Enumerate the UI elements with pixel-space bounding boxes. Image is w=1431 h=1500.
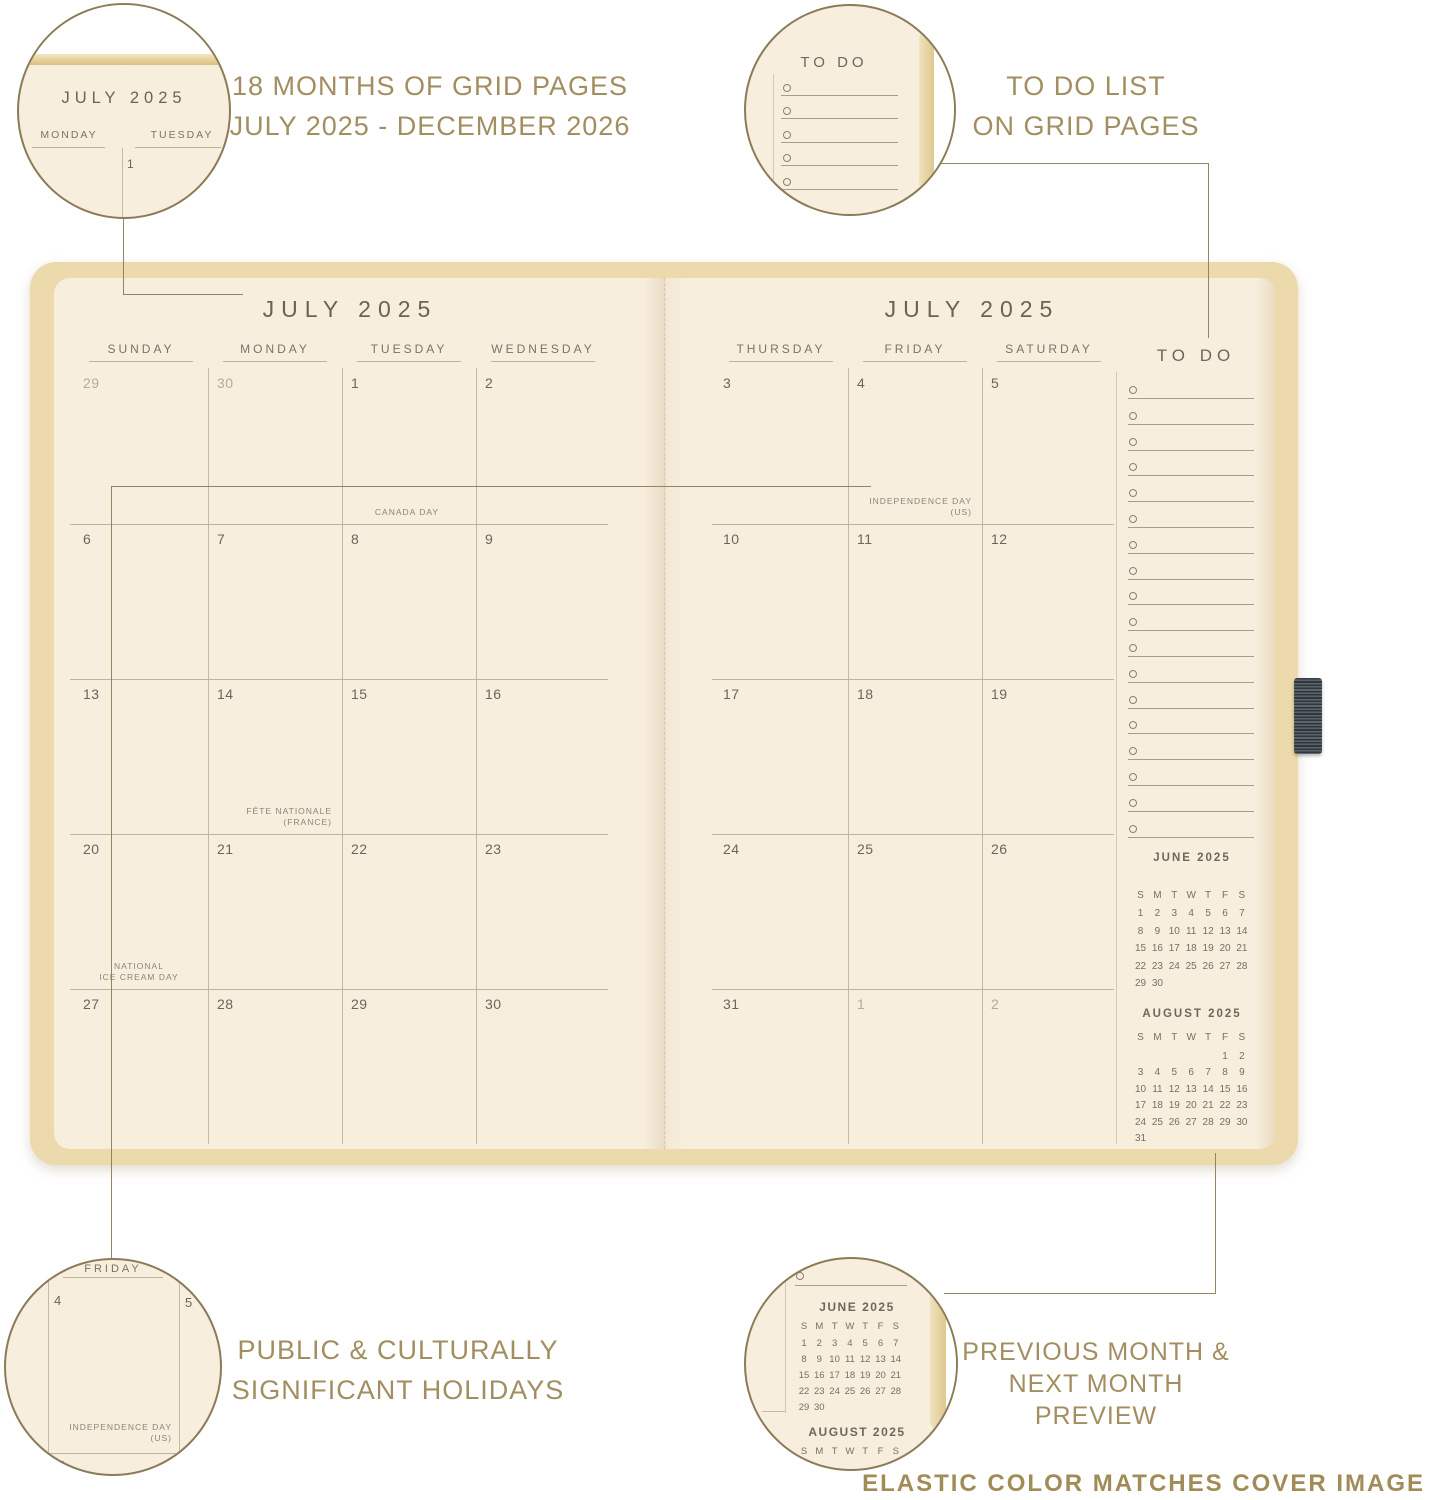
mini-calendar-cell: 22	[796, 1386, 812, 1397]
mini-calendar-cell: 10	[1132, 1084, 1149, 1095]
mini-calendar-cell: 18	[1149, 1100, 1166, 1111]
mini-calendar-cell: 2	[1233, 1051, 1250, 1062]
date-cell: 31	[723, 996, 740, 1012]
todo-bullet-icon	[1129, 696, 1137, 704]
elastic-pen-loop	[1294, 678, 1322, 754]
connector-line	[1208, 163, 1209, 338]
mini-calendar-weekday: F	[873, 1446, 889, 1457]
mini-calendar-cell: 25	[842, 1386, 858, 1397]
todo-rule-line	[1128, 837, 1254, 838]
todo-bullet-icon	[1129, 644, 1137, 652]
mini-calendar-cell: 6	[1217, 908, 1234, 919]
todo-bullet-icon	[1129, 670, 1137, 678]
date-cell: 6	[83, 531, 91, 547]
mini-calendar-cell: 18	[1183, 943, 1200, 954]
day-header-underline	[63, 1277, 163, 1278]
mini-calendar-cell: 17	[827, 1370, 843, 1381]
mini-calendar-cell: 12	[1200, 926, 1217, 937]
mini-calendar-cell: 9	[811, 1354, 827, 1365]
todo-bullet-icon	[783, 154, 791, 162]
grid-line	[762, 1411, 785, 1412]
date-cell: 22	[351, 841, 368, 857]
mini-calendar-cell: 29	[796, 1402, 812, 1413]
mini-calendar-cell: 28	[1233, 961, 1250, 972]
mini-calendar-cell: 13	[1183, 1084, 1200, 1095]
date-cell: 15	[351, 686, 368, 702]
mini-calendar-cell: 14	[1200, 1084, 1217, 1095]
mini-calendar-cell: 8	[796, 1354, 812, 1365]
mini-calendar-weekday: T	[857, 1446, 873, 1457]
connector-line	[1215, 1153, 1216, 1293]
mini-calendar-cell: 2	[811, 1338, 827, 1349]
mini-calendar-cell: 27	[1183, 1117, 1200, 1128]
mini-calendar-cell: 10	[1166, 926, 1183, 937]
mini-calendar-cell: 29	[1132, 978, 1149, 989]
date-cell: 4	[857, 375, 865, 391]
mini-calendar-cell: 9	[1233, 1067, 1250, 1078]
mini-calendar-cell: 5	[1166, 1067, 1183, 1078]
mini-calendar-weekday: T	[1166, 890, 1183, 901]
date-cell: 30	[217, 375, 234, 391]
mini-calendar-cell: 27	[1217, 961, 1234, 972]
todo-bullet-icon	[1129, 489, 1137, 497]
connector-line	[123, 294, 243, 295]
zoom-circle-mini-calendars: JUNE 2025 SMTWTFS12345678910111213141516…	[744, 1257, 958, 1471]
date-cell: 2	[485, 375, 493, 391]
mini-calendar-cell: 7	[1200, 1067, 1217, 1078]
mini-calendar-weekday: M	[1149, 890, 1166, 901]
holiday-label: NATIONALICE CREAM DAY	[80, 961, 198, 983]
right-page-month-title: JULY 2025	[714, 296, 1230, 323]
circle-date-number: 4	[54, 1293, 61, 1308]
mini-calendar-cell: 30	[1149, 978, 1166, 989]
mini-calendar-cell: 1	[1132, 908, 1149, 919]
todo-rule-line	[1128, 682, 1254, 683]
date-cell: 28	[217, 996, 234, 1012]
background-above-cover	[19, 5, 229, 54]
mini-calendar-cell: 23	[1233, 1100, 1250, 1111]
mini-calendar-cell: 14	[1233, 926, 1250, 937]
connector-line	[937, 163, 1209, 164]
date-cell: 30	[485, 996, 502, 1012]
mini-calendar-cell: 31	[1132, 1133, 1149, 1144]
todo-bullet-icon	[1129, 386, 1137, 394]
todo-rule-line	[1128, 450, 1254, 451]
mini-calendar-cell: 24	[1166, 961, 1183, 972]
mini-calendar-cell: 17	[1132, 1100, 1149, 1111]
todo-bullet-icon	[1129, 438, 1137, 446]
callout-label-grid-pages: 18 MONTHS OF GRID PAGES JULY 2025 - DECE…	[180, 66, 680, 146]
todo-rule-line	[1128, 604, 1254, 605]
zoom-circle-todo-list: TO DO	[744, 4, 956, 216]
todo-rule-line	[1128, 527, 1254, 528]
todo-rule-line	[1128, 579, 1254, 580]
mini-calendar-cell: 14	[888, 1354, 904, 1365]
elastic-color-note: ELASTIC COLOR MATCHES COVER IMAGE	[862, 1470, 1425, 1498]
mini-calendar-cell: 16	[1149, 943, 1166, 954]
mini-calendar-cell: 4	[842, 1338, 858, 1349]
date-cell: 11	[857, 531, 873, 547]
circle-todo-title: TO DO	[746, 54, 922, 71]
holiday-label: FÊTE NATIONALE(FRANCE)	[214, 806, 332, 828]
day-header: THURSDAY	[714, 342, 848, 366]
mini-calendar-cell: 24	[827, 1386, 843, 1397]
todo-bullet-icon	[1129, 799, 1137, 807]
date-cell: 24	[723, 841, 740, 857]
todo-rule-line	[781, 142, 898, 143]
todo-bullet-icon	[1129, 618, 1137, 626]
mini-calendar-weekday: W	[842, 1321, 858, 1332]
circle-june-title: JUNE 2025	[798, 1300, 916, 1314]
todo-rule-line	[1128, 398, 1254, 399]
mini-calendar-cell: 21	[1233, 943, 1250, 954]
date-cell: 1	[351, 375, 359, 391]
mini-calendar-weekday: S	[1233, 1032, 1250, 1043]
mini-calendar-weekday: S	[888, 1446, 904, 1457]
mini-calendar-cell: 11	[842, 1354, 858, 1365]
date-cell: 5	[991, 375, 999, 391]
connector-line	[123, 215, 124, 295]
todo-bullet-icon	[1129, 515, 1137, 523]
mini-calendar-cell: 23	[1149, 961, 1166, 972]
mini-calendar-weekday: T	[857, 1321, 873, 1332]
mini-calendar-weekday: F	[1217, 1032, 1234, 1043]
mini-calendar-cell: 12	[1166, 1084, 1183, 1095]
mini-calendar-cell: 23	[811, 1386, 827, 1397]
todo-rule-line	[781, 189, 898, 190]
mini-calendar-cell: 19	[857, 1370, 873, 1381]
date-cell: 18	[857, 686, 874, 702]
mini-calendar-cell: 9	[1149, 926, 1166, 937]
mini-calendar-cell: 15	[1217, 1084, 1234, 1095]
product-image-canvas: JULY 2025 JULY 2025 TO DO JUNE 2025 AUGU…	[0, 0, 1431, 1500]
date-cell: 2	[991, 996, 999, 1012]
todo-bullet-icon	[1129, 592, 1137, 600]
mini-calendar-weekday: T	[1200, 890, 1217, 901]
date-cell: 1	[857, 996, 865, 1012]
grid-line	[982, 368, 983, 1144]
mini-calendar-cell: 19	[1166, 1100, 1183, 1111]
mini-calendar-cell: 28	[1200, 1117, 1217, 1128]
mini-calendar-cell: 28	[888, 1386, 904, 1397]
todo-rule-line	[1128, 424, 1254, 425]
mini-calendar-cell: 12	[857, 1354, 873, 1365]
mini-calendar-cell: 8	[1132, 926, 1149, 937]
todo-bullet-icon	[1129, 721, 1137, 729]
date-cell: 9	[485, 531, 493, 547]
mini-calendar-cell: 13	[873, 1354, 889, 1365]
mini-calendar-cell: 7	[1233, 908, 1250, 919]
mini-calendar-cell: 2	[1149, 908, 1166, 919]
date-cell: 29	[83, 375, 100, 391]
connector-line	[111, 486, 871, 487]
holiday-label: INDEPENDENCE DAY(US)	[854, 496, 972, 518]
mini-calendar-cell: 27	[873, 1386, 889, 1397]
date-cell: 14	[217, 686, 234, 702]
mini-calendar-weekday: S	[796, 1321, 812, 1332]
mini-calendar-weekday: W	[1183, 1032, 1200, 1043]
grid-line	[712, 679, 1114, 680]
day-header: MONDAY	[208, 342, 342, 366]
todo-rule-line	[1128, 475, 1254, 476]
todo-bullet-icon	[1129, 463, 1137, 471]
grid-line	[712, 834, 1114, 835]
todo-rule-line	[1128, 656, 1254, 657]
mini-calendar-cell: 30	[811, 1402, 827, 1413]
circle-day-header: MONDAY	[33, 129, 105, 141]
day-header: WEDNESDAY	[476, 342, 610, 366]
todo-bullet-icon	[1129, 541, 1137, 549]
mini-calendar-weekday: S	[1132, 890, 1149, 901]
mini-calendar-cell: 18	[842, 1370, 858, 1381]
mini-calendar-cell: 5	[857, 1338, 873, 1349]
planner-content-layer: JULY 2025 JULY 2025 TO DO JUNE 2025 AUGU…	[0, 0, 1431, 1500]
callout-label-todo: TO DO LIST ON GRID PAGES	[936, 66, 1236, 146]
mini-calendar-cell: 29	[1217, 1117, 1234, 1128]
date-cell: 7	[217, 531, 225, 547]
mini-calendar-weekday: M	[811, 1446, 827, 1457]
todo-separator-line	[1116, 372, 1117, 1144]
mini-calendar-cell: 16	[811, 1370, 827, 1381]
grid-line	[70, 989, 608, 990]
todo-bullet-icon	[783, 131, 791, 139]
day-header: TUESDAY	[342, 342, 476, 366]
grid-line	[70, 679, 608, 680]
todo-rule-line	[781, 165, 898, 166]
todo-bullet-icon	[783, 107, 791, 115]
mini-calendar-weekday: M	[811, 1321, 827, 1332]
mini-calendar-cell: 1	[796, 1338, 812, 1349]
date-cell: 10	[723, 531, 740, 547]
grid-line	[6, 1453, 220, 1454]
grid-line	[712, 989, 1114, 990]
mini-calendar-cell: 11	[1149, 1084, 1166, 1095]
mini-calendar-cell: 13	[1217, 926, 1234, 937]
mini-calendar-weekday: F	[1217, 890, 1234, 901]
mini-calendar-cell: 20	[1217, 943, 1234, 954]
mini-calendar-cell: 26	[857, 1386, 873, 1397]
cover-edge-band	[19, 54, 229, 65]
mini-calendar-cell: 20	[873, 1370, 889, 1381]
mini-calendar-cell: 10	[827, 1354, 843, 1365]
date-cell: 13	[83, 686, 100, 702]
mini-calendar-cell: 8	[1217, 1067, 1234, 1078]
mini-calendar-august-title: AUGUST 2025	[1133, 1008, 1251, 1020]
mini-calendar-cell: 15	[796, 1370, 812, 1381]
todo-bullet-icon	[1129, 567, 1137, 575]
todo-bullet-icon	[1129, 773, 1137, 781]
todo-rule-line	[1128, 811, 1254, 812]
mini-calendar-cell: 6	[873, 1338, 889, 1349]
grid-line	[848, 368, 849, 1144]
grid-line	[208, 368, 209, 1144]
grid-line	[342, 368, 343, 1144]
mini-calendar-cell: 7	[888, 1338, 904, 1349]
mini-calendar-cell: 6	[1183, 1067, 1200, 1078]
todo-bullet-icon	[1129, 825, 1137, 833]
page-edge-band	[930, 1289, 946, 1429]
circle-date-number: 11	[53, 1458, 67, 1473]
mini-calendar-cell: 15	[1132, 943, 1149, 954]
connector-line	[944, 1293, 1216, 1294]
grid-line	[122, 148, 123, 218]
todo-rule-line	[1128, 501, 1254, 502]
mini-calendar-cell: 1	[1217, 1051, 1234, 1062]
holiday-label: CANADA DAY	[348, 507, 466, 518]
todo-bullet-icon	[1129, 747, 1137, 755]
todo-column-title: TO DO	[1116, 346, 1276, 366]
date-cell: 23	[485, 841, 502, 857]
date-cell: 21	[217, 841, 234, 857]
mini-calendar-cell: 22	[1217, 1100, 1234, 1111]
left-page-month-title: JULY 2025	[74, 296, 626, 323]
date-cell: 19	[991, 686, 1008, 702]
todo-rule-line	[1128, 733, 1254, 734]
circle-day-header: FRIDAY	[6, 1263, 220, 1275]
mini-calendar-cell: 20	[1183, 1100, 1200, 1111]
mini-calendar-cell: 26	[1166, 1117, 1183, 1128]
connector-line	[111, 486, 112, 1260]
todo-rule-line	[1128, 630, 1254, 631]
callout-label-holidays: PUBLIC & CULTURALLY SIGNIFICANT HOLIDAYS	[148, 1330, 648, 1410]
todo-bullet-icon	[783, 84, 791, 92]
mini-calendar-weekday: W	[1183, 890, 1200, 901]
mini-calendar-weekday: T	[827, 1446, 843, 1457]
date-cell: 27	[83, 996, 100, 1012]
mini-calendar-weekday: S	[796, 1446, 812, 1457]
todo-rule-line	[795, 1285, 907, 1286]
date-cell: 29	[351, 996, 368, 1012]
todo-rule-line	[781, 118, 898, 119]
mini-calendar-weekday: S	[888, 1321, 904, 1332]
grid-line	[712, 524, 1114, 525]
todo-rule-line	[1128, 553, 1254, 554]
day-header: SATURDAY	[982, 342, 1116, 366]
date-cell: 25	[857, 841, 874, 857]
mini-calendar-cell: 4	[1183, 908, 1200, 919]
mini-calendar-june-title: JUNE 2025	[1133, 852, 1251, 864]
todo-rule-line	[1128, 708, 1254, 709]
mini-calendar-cell: 5	[1200, 908, 1217, 919]
mini-calendar-weekday: S	[1233, 890, 1250, 901]
mini-calendar-cell: 17	[1166, 943, 1183, 954]
todo-bullet-icon	[796, 1272, 804, 1280]
circle-august-title: AUGUST 2025	[794, 1425, 920, 1439]
date-cell: 12	[991, 531, 1008, 547]
mini-calendar-weekday: T	[1166, 1032, 1183, 1043]
grid-line	[476, 368, 477, 1144]
grid-line	[70, 524, 608, 525]
todo-rule-line	[781, 95, 898, 96]
circle-date-number: 5	[185, 1295, 192, 1310]
date-cell: 16	[485, 686, 502, 702]
day-header: FRIDAY	[848, 342, 982, 366]
holiday-label: INDEPENDENCE DAY (US)	[46, 1422, 172, 1444]
mini-calendar-cell: 11	[1183, 926, 1200, 937]
date-cell: 20	[83, 841, 100, 857]
date-cell: 17	[723, 686, 740, 702]
mini-calendar-weekday: W	[842, 1446, 858, 1457]
mini-calendar-weekday: F	[873, 1321, 889, 1332]
mini-calendar-cell: 22	[1132, 961, 1149, 972]
mini-calendar-cell: 4	[1149, 1067, 1166, 1078]
mini-calendar-cell: 3	[1132, 1067, 1149, 1078]
mini-calendar-weekday: M	[1149, 1032, 1166, 1043]
date-cell: 8	[351, 531, 359, 547]
date-cell: 3	[723, 375, 731, 391]
mini-calendar-cell: 26	[1200, 961, 1217, 972]
todo-separator-line	[773, 74, 774, 194]
date-cell: 26	[991, 841, 1008, 857]
todo-rule-line	[1128, 785, 1254, 786]
day-header-underline	[135, 147, 221, 148]
circle-date-number: 1	[127, 157, 134, 171]
mini-calendar-cell: 24	[1132, 1117, 1149, 1128]
callout-label-month-preview: PREVIOUS MONTH & NEXT MONTH PREVIEW	[946, 1336, 1246, 1432]
mini-calendar-cell: 16	[1233, 1084, 1250, 1095]
mini-calendar-cell: 19	[1200, 943, 1217, 954]
grid-line	[70, 834, 608, 835]
mini-calendar-cell: 30	[1233, 1117, 1250, 1128]
day-header: SUNDAY	[74, 342, 208, 366]
mini-calendar-weekday: T	[827, 1321, 843, 1332]
todo-bullet-icon	[783, 178, 791, 186]
todo-separator-line	[785, 1267, 786, 1413]
mini-calendar-weekday: T	[1200, 1032, 1217, 1043]
mini-calendar-cell: 3	[1166, 908, 1183, 919]
mini-calendar-cell: 21	[888, 1370, 904, 1381]
mini-calendar-cell: 21	[1200, 1100, 1217, 1111]
todo-bullet-icon	[1129, 412, 1137, 420]
todo-rule-line	[1128, 759, 1254, 760]
mini-calendar-weekday: S	[1132, 1032, 1149, 1043]
mini-calendar-cell: 3	[827, 1338, 843, 1349]
mini-calendar-cell: 25	[1149, 1117, 1166, 1128]
day-header-underline	[32, 147, 105, 148]
mini-calendar-cell: 25	[1183, 961, 1200, 972]
